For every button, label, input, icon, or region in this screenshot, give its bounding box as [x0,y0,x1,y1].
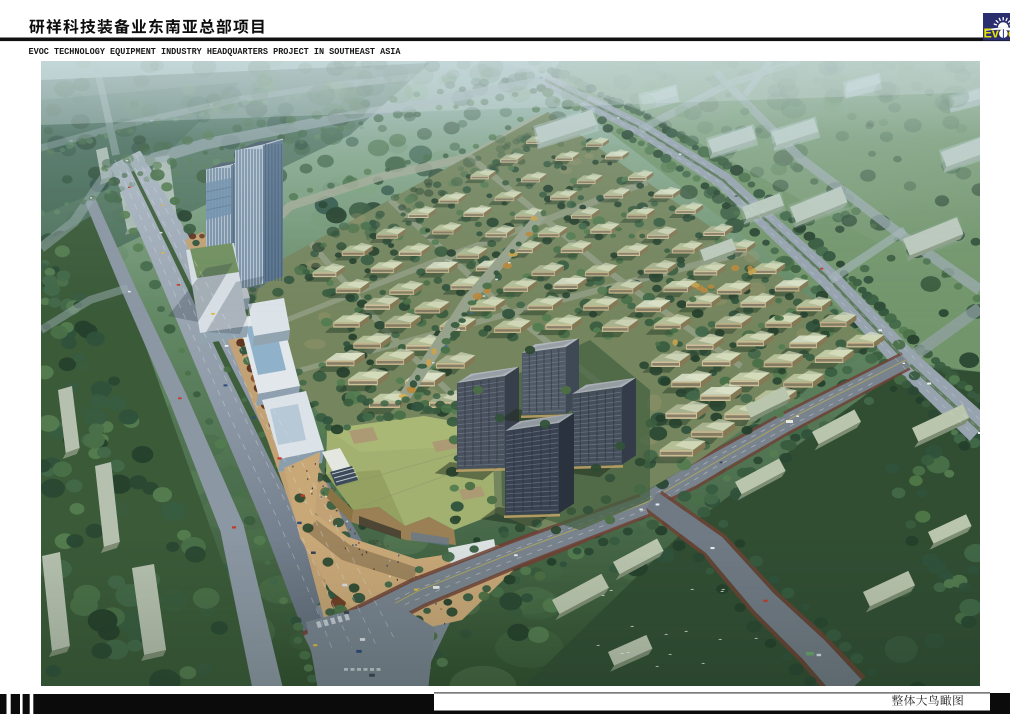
svg-text:Ev: Ev [984,27,999,41]
svg-text:EVOC TECHNOLOGY EQUIPMENT INDU: EVOC TECHNOLOGY EQUIPMENT INDUSTRY HEADQ… [29,46,401,57]
